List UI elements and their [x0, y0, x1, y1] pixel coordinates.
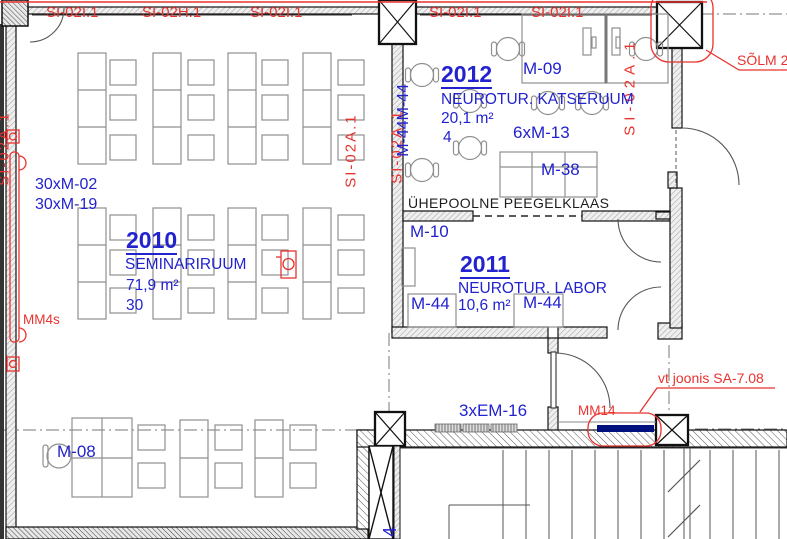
door-arc-corridor-right: [682, 128, 739, 185]
stair-shaft-pier: [369, 446, 400, 539]
radiator-strip: [435, 424, 461, 432]
wall-tag-si02a-mid-left: SI-02A.1: [343, 113, 359, 187]
room-name-2010: SEMINARIRUUM: [125, 257, 246, 273]
room-capacity-2010: 30: [126, 298, 143, 314]
wall-tag-si02a-right: SI-02A.1: [622, 37, 638, 135]
tag-mm4s: MM4s: [23, 313, 60, 327]
tag-m10: M-10: [410, 223, 449, 241]
tag-mm14: MM14: [578, 404, 616, 418]
column-top-right: [657, 2, 702, 48]
desks-room-2010: [78, 53, 364, 319]
tag-m44-left: M-44: [411, 295, 450, 313]
tag-m09: M-09: [523, 60, 562, 78]
tag-m08: M-08: [57, 443, 96, 461]
column-top-middle: [379, 0, 416, 44]
room-area-2011: 10,6 m²: [458, 298, 511, 314]
structural-columns: [2, 0, 702, 446]
room-number-2011: 2011: [460, 252, 510, 279]
tag-m38: M-38: [541, 161, 580, 179]
radiator-strip: [491, 424, 517, 432]
tag-6xm13: 6xM-13: [513, 124, 570, 142]
floorplan-linework: [0, 0, 787, 539]
stairs: [369, 446, 787, 539]
door-arc-2011-upper: [618, 219, 661, 262]
tag-30xm19: 30xM-19: [35, 197, 97, 214]
tag-30xm02: 30xM-02: [35, 177, 97, 194]
tag-m44-vertical: M-44M-44: [396, 84, 413, 157]
note-node-ref: SÕLM 2: [737, 53, 787, 68]
leader-vt-joonis: [640, 388, 775, 412]
outlet-symbol-room2010: [276, 251, 296, 278]
glass-note: ÜHEPOOLNE PEEGELKLAAS: [408, 196, 609, 211]
cabinet-m10: [402, 248, 415, 286]
wall-tag-si02i-d: SI-02I.1: [531, 5, 584, 21]
tag-3xem16: 3xEM-16: [459, 402, 527, 420]
wall-tag-si02h: SI-02H.1: [142, 5, 201, 21]
room-name-2012: NEUROTUR. KATSERUUM: [441, 92, 634, 108]
floor-plan-canvas: SI-02I.1 SI-02H.1 SI-02I.1 SI-02I.1 SI-0…: [0, 0, 787, 539]
wall-tag-si02i-a: SI-02I.1: [46, 5, 99, 21]
room-area-2012: 20,1 m²: [441, 111, 494, 127]
wall-tag-si02a-left: SI-02A.1: [0, 111, 12, 185]
monitor-icon: [583, 28, 591, 55]
door-arc-2011-lower: [618, 287, 661, 330]
room-number-2012: 2012: [441, 62, 492, 89]
door-leaf-stair: [551, 352, 556, 408]
room-area-2010: 71,9 m²: [126, 278, 179, 294]
wall-tag-si02i-b: SI-02I.1: [250, 5, 303, 21]
room-capacity-2012: 4: [443, 130, 452, 146]
column-top-left: [2, 0, 28, 26]
tag-stair-4: 4: [381, 527, 400, 537]
column-bottom-left: [375, 412, 405, 446]
radiator-strip: [463, 424, 489, 432]
wall-tag-si02i-c: SI-02I.1: [429, 5, 482, 21]
tag-m44-right: M-44: [523, 294, 562, 312]
mm14-element-bar: [597, 425, 654, 432]
note-detail-ref: vt joonis SA-7.08: [658, 371, 764, 386]
room-number-2010: 2010: [126, 228, 177, 255]
door-arc-stair: [556, 353, 610, 408]
